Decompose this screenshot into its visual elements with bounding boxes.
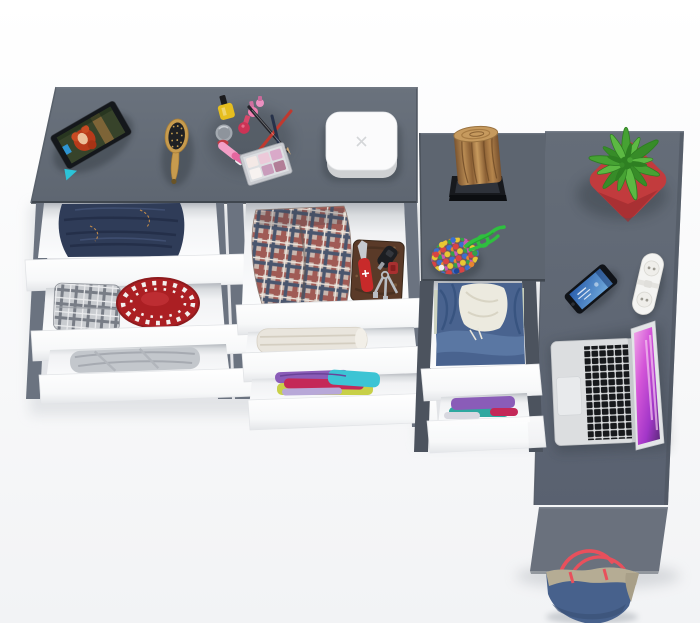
middle-drawer-stack <box>236 203 438 430</box>
colorful-clothes <box>275 369 381 395</box>
plaid-shorts <box>252 206 351 304</box>
purple-clothes <box>444 396 518 419</box>
jeans <box>59 203 185 257</box>
scene-root <box>0 0 700 623</box>
left-drawer-stack <box>25 203 257 404</box>
desk-leg-panel <box>530 507 668 574</box>
wardrobe-drawer-stack <box>414 281 546 453</box>
wooden-log <box>453 125 502 186</box>
jewelry-box <box>322 112 402 182</box>
drawer-front <box>427 416 546 453</box>
plaid-shirt <box>53 283 121 332</box>
hoodie <box>434 283 525 366</box>
gray-clothes <box>70 347 201 374</box>
red-hat <box>117 278 199 328</box>
